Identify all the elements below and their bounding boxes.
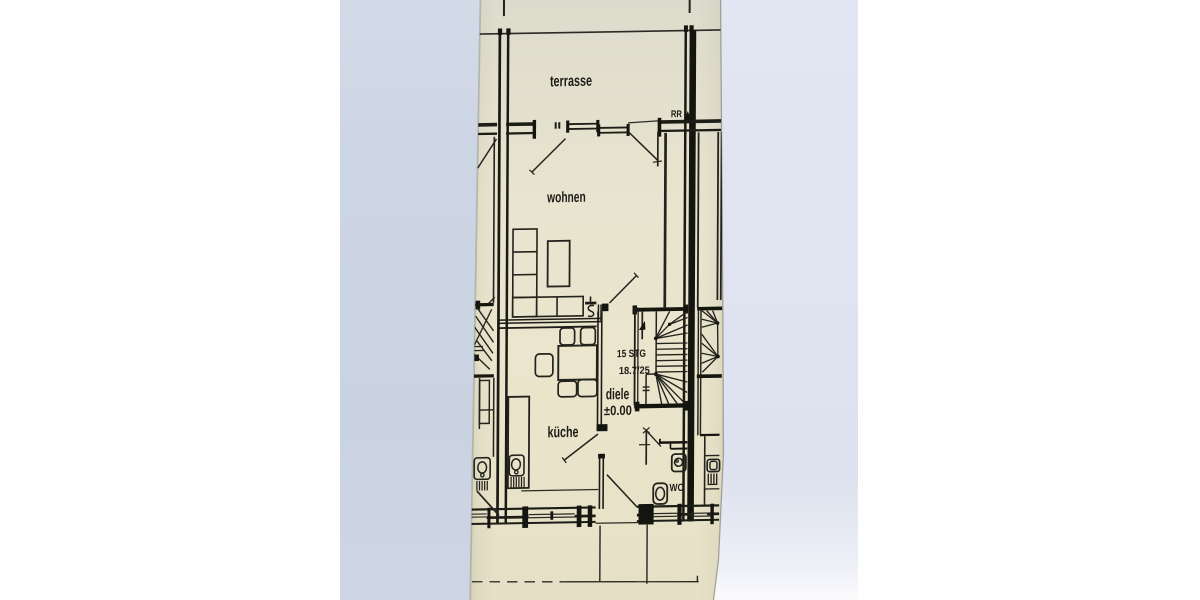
svg-text:diele: diele	[606, 386, 630, 403]
svg-text:15 STG: 15 STG	[617, 348, 646, 360]
svg-text:±0.00: ±0.00	[604, 403, 632, 418]
svg-text:küche: küche	[547, 424, 578, 442]
svg-text:WC: WC	[670, 482, 684, 494]
svg-text:RR: RR	[671, 109, 683, 120]
svg-text:terrasse: terrasse	[550, 73, 592, 91]
svg-text:wohnen: wohnen	[546, 189, 585, 207]
